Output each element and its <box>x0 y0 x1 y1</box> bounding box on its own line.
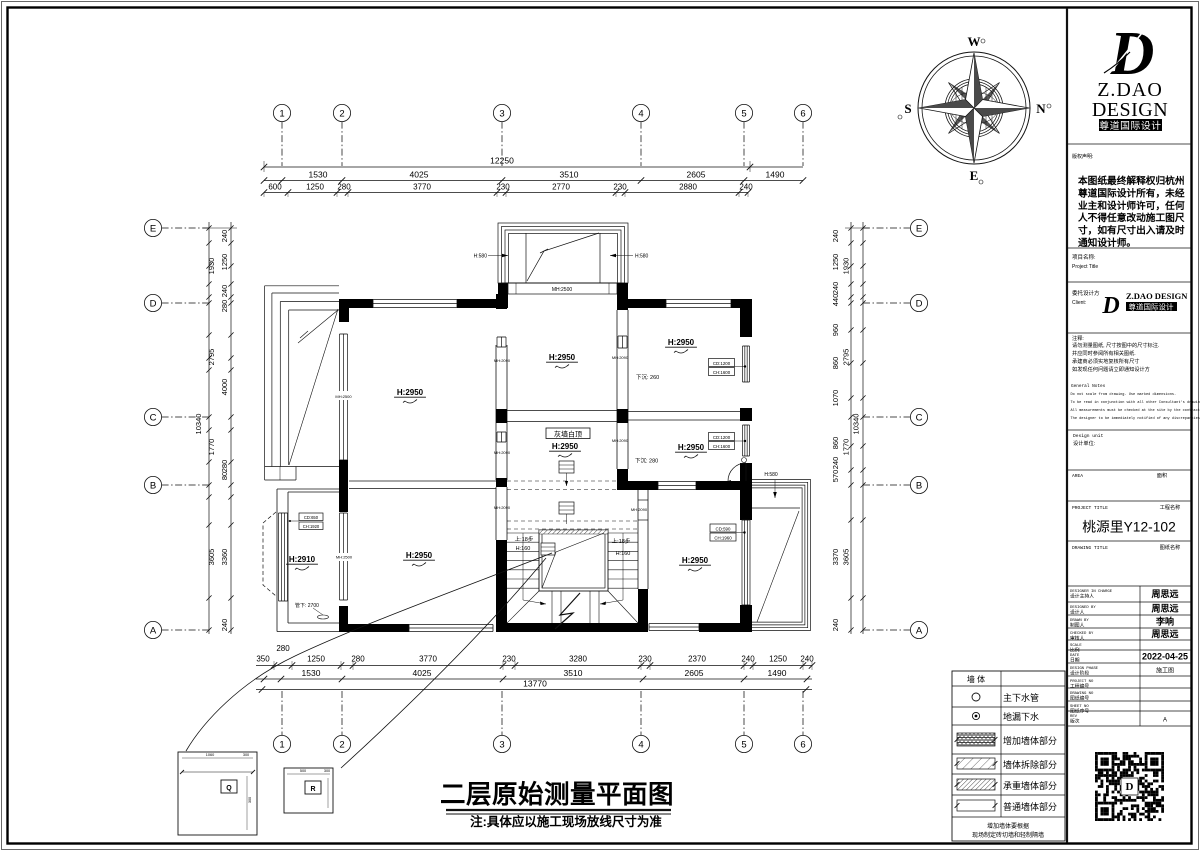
svg-text:施工图: 施工图 <box>1156 667 1174 675</box>
svg-text:E: E <box>970 168 979 183</box>
svg-text:1250: 1250 <box>769 655 787 664</box>
svg-text:注释:: 注释: <box>1072 334 1084 342</box>
svg-text:版次: 版次 <box>1070 718 1080 725</box>
svg-text:H:580: H:580 <box>474 254 488 260</box>
svg-text:设计人: 设计人 <box>1070 609 1085 616</box>
svg-text:4: 4 <box>638 740 643 751</box>
svg-text:H:160: H:160 <box>516 546 531 552</box>
svg-text:增加墙体部分: 增加墙体部分 <box>1003 735 1057 746</box>
svg-text:CHECKED BY: CHECKED BY <box>1070 632 1094 636</box>
svg-text:1530: 1530 <box>302 668 321 678</box>
svg-text:H:2950: H:2950 <box>552 442 579 451</box>
svg-text:REV: REV <box>1070 715 1078 719</box>
svg-text:业主和设计师许可，任何: 业主和设计师许可，任何 <box>1078 199 1185 212</box>
svg-text:Design unit: Design unit <box>1073 433 1104 439</box>
svg-text:周思远: 周思远 <box>1151 589 1179 599</box>
svg-text:240: 240 <box>220 230 229 243</box>
svg-text:上:18步: 上:18步 <box>515 535 534 543</box>
svg-text:1: 1 <box>279 109 284 120</box>
svg-text:设计阶段: 设计阶段 <box>1070 670 1089 677</box>
svg-text:DRAWING NO: DRAWING NO <box>1070 692 1094 696</box>
svg-text:3770: 3770 <box>419 655 437 664</box>
svg-text:审核人: 审核人 <box>1070 635 1085 642</box>
svg-text:MH:2090: MH:2090 <box>494 505 511 510</box>
svg-text:工程名称: 工程名称 <box>1160 503 1181 511</box>
svg-text:3770: 3770 <box>413 183 431 192</box>
svg-text:12250: 12250 <box>490 156 514 166</box>
svg-text:3605: 3605 <box>842 549 851 566</box>
svg-text:240: 240 <box>220 285 229 298</box>
svg-text:2: 2 <box>339 740 344 751</box>
svg-text:D: D <box>1101 293 1119 319</box>
svg-text:280: 280 <box>276 644 290 653</box>
svg-text:SCALE: SCALE <box>1070 644 1082 648</box>
svg-text:1250: 1250 <box>306 183 324 192</box>
svg-text:设计单位:: 设计单位: <box>1073 439 1095 447</box>
svg-text:280: 280 <box>351 655 365 664</box>
svg-text:墙 体: 墙 体 <box>967 674 985 684</box>
svg-text:Z.DAO: Z.DAO <box>1097 79 1163 101</box>
svg-text:500: 500 <box>300 769 306 773</box>
svg-text:860: 860 <box>831 357 840 370</box>
svg-text:D: D <box>916 299 923 310</box>
svg-text:尊道国际设计: 尊道国际设计 <box>1099 119 1161 132</box>
svg-text:4: 4 <box>638 109 643 120</box>
svg-text:CD:1200: CD:1200 <box>713 361 731 366</box>
svg-text:DESIGN PHASE: DESIGN PHASE <box>1070 667 1099 671</box>
svg-text:CH:1600: CH:1600 <box>713 444 731 449</box>
svg-text:3360: 3360 <box>220 549 229 566</box>
svg-text:桃源里Y12-102: 桃源里Y12-102 <box>1082 520 1176 535</box>
svg-text:240: 240 <box>831 230 840 243</box>
svg-text:注:具体应以施工现场放线尺寸为准: 注:具体应以施工现场放线尺寸为准 <box>470 814 662 829</box>
svg-text:周思远: 周思远 <box>1151 604 1179 614</box>
svg-text:H:2910: H:2910 <box>289 555 316 564</box>
svg-text:240: 240 <box>831 457 840 470</box>
svg-text:1060: 1060 <box>206 753 214 757</box>
svg-text:1530: 1530 <box>309 170 328 180</box>
svg-text:尊道国际设计所有，未经: 尊道国际设计所有，未经 <box>1078 186 1185 199</box>
svg-text:DRAWING TITLE: DRAWING TITLE <box>1072 545 1108 551</box>
svg-text:300: 300 <box>243 753 249 757</box>
svg-text:C: C <box>150 413 157 424</box>
svg-text:4025: 4025 <box>410 170 429 180</box>
svg-text:PROJECT NO: PROJECT NO <box>1070 680 1094 684</box>
svg-text:H:580: H:580 <box>764 472 778 478</box>
svg-text:比例: 比例 <box>1070 647 1080 654</box>
svg-text:570: 570 <box>831 470 840 483</box>
svg-text:4000: 4000 <box>220 379 229 396</box>
svg-text:图纸名称: 图纸名称 <box>1160 543 1181 551</box>
svg-text:2605: 2605 <box>685 668 704 678</box>
svg-text:2370: 2370 <box>688 655 706 664</box>
svg-text:MH:2500: MH:2500 <box>336 555 353 560</box>
svg-text:13770: 13770 <box>523 679 547 689</box>
svg-text:D: D <box>150 299 157 310</box>
svg-text:2880: 2880 <box>679 183 697 192</box>
svg-text:Project Title: Project Title <box>1072 264 1098 270</box>
svg-text:H:2950: H:2950 <box>668 338 695 347</box>
svg-text:CD:650: CD:650 <box>304 515 319 520</box>
svg-text:CD:1200: CD:1200 <box>713 435 731 440</box>
svg-text:CD:590: CD:590 <box>716 527 731 532</box>
svg-text:本图纸最终解释权归杭州: 本图纸最终解释权归杭州 <box>1077 174 1185 187</box>
svg-text:280: 280 <box>220 460 229 473</box>
svg-text:10340: 10340 <box>194 414 203 435</box>
svg-text:MH:2090: MH:2090 <box>494 358 511 363</box>
svg-text:B: B <box>150 481 156 492</box>
svg-text:H:2950: H:2950 <box>397 388 424 397</box>
svg-text:请勿测量图纸, 尺寸按图中的尺寸标注.: 请勿测量图纸, 尺寸按图中的尺寸标注. <box>1072 341 1159 349</box>
svg-text:1: 1 <box>279 740 284 751</box>
svg-text:现场制定砖切墙和轻制隔墙: 现场制定砖切墙和轻制隔墙 <box>972 831 1044 839</box>
svg-text:2795: 2795 <box>842 349 851 366</box>
svg-text:1930: 1930 <box>207 258 216 275</box>
svg-text:DATE: DATE <box>1070 654 1080 658</box>
svg-text:280: 280 <box>220 300 229 313</box>
svg-text:图纸序号: 图纸序号 <box>1070 708 1089 715</box>
svg-text:E: E <box>916 224 922 235</box>
svg-text:A: A <box>1163 718 1167 724</box>
svg-text:E: E <box>150 224 156 235</box>
svg-text:SHEET NO: SHEET NO <box>1070 705 1089 709</box>
svg-text:二层原始测量平面图: 二层原始测量平面图 <box>440 780 674 809</box>
svg-text:工程编号: 工程编号 <box>1070 683 1089 690</box>
svg-text:10340: 10340 <box>852 414 861 435</box>
svg-text:H:2950: H:2950 <box>682 556 709 565</box>
svg-text:General Notes: General Notes <box>1071 384 1106 389</box>
svg-text:图纸编号: 图纸编号 <box>1070 695 1089 702</box>
svg-text:230: 230 <box>638 655 652 664</box>
svg-text:6: 6 <box>800 740 805 751</box>
svg-text:230: 230 <box>613 183 627 192</box>
svg-text:CH:1920: CH:1920 <box>303 524 320 529</box>
svg-text:墙体拆除部分: 墙体拆除部分 <box>1003 759 1057 770</box>
svg-text:860: 860 <box>831 437 840 450</box>
svg-text:DESIGNED BY: DESIGNED BY <box>1070 606 1096 610</box>
svg-text:承重墙体部分: 承重墙体部分 <box>1003 780 1057 791</box>
svg-text:版权声明:: 版权声明: <box>1072 153 1093 160</box>
svg-text:3510: 3510 <box>560 170 579 180</box>
svg-text:5: 5 <box>741 109 746 120</box>
svg-text:240: 240 <box>741 655 755 664</box>
svg-text:MH:2090: MH:2090 <box>612 355 629 360</box>
svg-text:设计主持人: 设计主持人 <box>1070 593 1094 600</box>
svg-text:如发现任何问题请立即通知设计方: 如发现任何问题请立即通知设计方 <box>1072 365 1150 373</box>
svg-text:240: 240 <box>220 619 229 632</box>
svg-text:3605: 3605 <box>207 549 216 566</box>
svg-text:灰墙白顶: 灰墙白顶 <box>554 430 582 439</box>
svg-text:C: C <box>916 413 923 424</box>
svg-text:230: 230 <box>496 183 510 192</box>
svg-text:440: 440 <box>831 294 840 307</box>
svg-text:MH:2500: MH:2500 <box>335 394 352 399</box>
svg-text:1490: 1490 <box>766 170 785 180</box>
svg-text:H:580: H:580 <box>635 254 649 260</box>
svg-text:Z.DAO DESIGN: Z.DAO DESIGN <box>1126 291 1188 301</box>
svg-text:通知设计师。: 通知设计师。 <box>1078 236 1136 249</box>
svg-text:承建商必须实地复核所有尺寸: 承建商必须实地复核所有尺寸 <box>1072 357 1139 365</box>
svg-text:MH:2090: MH:2090 <box>612 438 629 443</box>
svg-text:主下水管: 主下水管 <box>1003 692 1039 703</box>
svg-text:6: 6 <box>800 109 805 120</box>
svg-text:80: 80 <box>220 472 229 480</box>
svg-text:地漏下水: 地漏下水 <box>1003 711 1039 722</box>
svg-text:To be read in conjunction with: To be read in conjunction with all other… <box>1071 400 1200 405</box>
svg-text:3280: 3280 <box>569 655 587 664</box>
svg-text:All measurements must be chec: All measurements must be checked at the … <box>1071 408 1200 413</box>
svg-text:3370: 3370 <box>831 549 840 566</box>
svg-text:The designer to be immediately: The designer to be immediately notified … <box>1071 416 1200 421</box>
svg-text:D: D <box>1109 20 1155 88</box>
svg-text:2605: 2605 <box>687 170 706 180</box>
svg-text:CH:1600: CH:1600 <box>713 370 731 375</box>
svg-text:240: 240 <box>800 655 814 664</box>
svg-text:2795: 2795 <box>207 349 216 366</box>
svg-text:960: 960 <box>831 324 840 337</box>
svg-text:普通墙体部分: 普通墙体部分 <box>1003 801 1057 812</box>
svg-text:230: 230 <box>502 655 516 664</box>
svg-text:2: 2 <box>339 109 344 120</box>
svg-text:1250: 1250 <box>831 254 840 271</box>
svg-text:上:18步: 上:18步 <box>612 537 631 545</box>
svg-text:600: 600 <box>268 183 282 192</box>
svg-text:1770: 1770 <box>207 439 216 456</box>
svg-text:项目名称:: 项目名称: <box>1072 253 1096 261</box>
svg-text:委托设计方: 委托设计方 <box>1072 289 1100 297</box>
svg-text:W: W <box>968 34 981 49</box>
svg-text:1250: 1250 <box>307 655 325 664</box>
svg-text:MH:2090: MH:2090 <box>631 507 648 512</box>
svg-text:300: 300 <box>248 797 252 803</box>
svg-text:并应同时参阅所有相关图纸.: 并应同时参阅所有相关图纸. <box>1072 349 1136 357</box>
svg-text:1250: 1250 <box>220 254 229 271</box>
svg-text:3: 3 <box>499 740 504 751</box>
svg-text:人不得任意改动施工图尺: 人不得任意改动施工图尺 <box>1078 211 1185 224</box>
svg-text:面积: 面积 <box>1157 472 1167 479</box>
svg-text:H:2950: H:2950 <box>406 551 433 560</box>
svg-text:增加墙体要根据: 增加墙体要根据 <box>987 822 1029 830</box>
svg-text:H:2950: H:2950 <box>549 353 576 362</box>
svg-text:管下: 2700: 管下: 2700 <box>295 602 319 609</box>
svg-text:3: 3 <box>499 109 504 120</box>
svg-text:MH:2500: MH:2500 <box>552 287 573 293</box>
svg-text:日期: 日期 <box>1070 658 1080 664</box>
svg-text:DRAWN BY: DRAWN BY <box>1070 619 1089 623</box>
svg-text:240: 240 <box>739 183 753 192</box>
svg-text:350: 350 <box>256 655 270 664</box>
svg-text:尊道国际设计: 尊道国际设计 <box>1129 302 1174 312</box>
svg-text:制图人: 制图人 <box>1070 622 1085 629</box>
svg-text:下沉: 280: 下沉: 280 <box>635 457 658 465</box>
svg-text:MH:2090: MH:2090 <box>494 450 511 455</box>
svg-text:1490: 1490 <box>768 668 787 678</box>
svg-text:280: 280 <box>337 183 351 192</box>
svg-text:B: B <box>916 481 922 492</box>
svg-text:H:160: H:160 <box>616 551 631 557</box>
svg-text:D: D <box>1126 781 1134 793</box>
svg-text:R: R <box>310 786 315 793</box>
svg-text:DESIGN: DESIGN <box>1092 99 1168 121</box>
svg-text:A: A <box>916 626 923 637</box>
svg-text:2770: 2770 <box>552 183 570 192</box>
svg-text:Q: Q <box>226 785 232 792</box>
svg-text:下沉: 260: 下沉: 260 <box>636 373 659 381</box>
svg-text:1930: 1930 <box>842 258 851 275</box>
svg-text:寸，如有尺寸出入请及时: 寸，如有尺寸出入请及时 <box>1078 224 1185 237</box>
svg-text:李响: 李响 <box>1155 616 1174 627</box>
svg-text:PROJECT TITLE: PROJECT TITLE <box>1072 505 1108 511</box>
svg-text:N: N <box>1036 101 1046 116</box>
svg-text:H:2950: H:2950 <box>678 443 705 452</box>
svg-text:周思远: 周思远 <box>1151 629 1179 639</box>
svg-text:240: 240 <box>831 619 840 632</box>
svg-text:1070: 1070 <box>831 390 840 407</box>
svg-text:240: 240 <box>831 282 840 295</box>
svg-text:S: S <box>904 101 911 116</box>
svg-text:1770: 1770 <box>842 439 851 456</box>
svg-text:DESIGNER IN CHARGE: DESIGNER IN CHARGE <box>1070 590 1113 594</box>
svg-text:4025: 4025 <box>413 668 432 678</box>
svg-text:5: 5 <box>741 740 746 751</box>
svg-text:AREA: AREA <box>1072 473 1083 479</box>
svg-text:Do not scale from drawing. Use: Do not scale from drawing. Use marked di… <box>1071 392 1177 397</box>
svg-text:3510: 3510 <box>564 668 583 678</box>
svg-text:CH:1960: CH:1960 <box>714 536 732 541</box>
svg-text:Client:: Client: <box>1072 300 1086 306</box>
svg-text:A: A <box>150 626 157 637</box>
svg-text:300: 300 <box>324 769 330 773</box>
svg-text:2022-04-25: 2022-04-25 <box>1142 652 1188 662</box>
